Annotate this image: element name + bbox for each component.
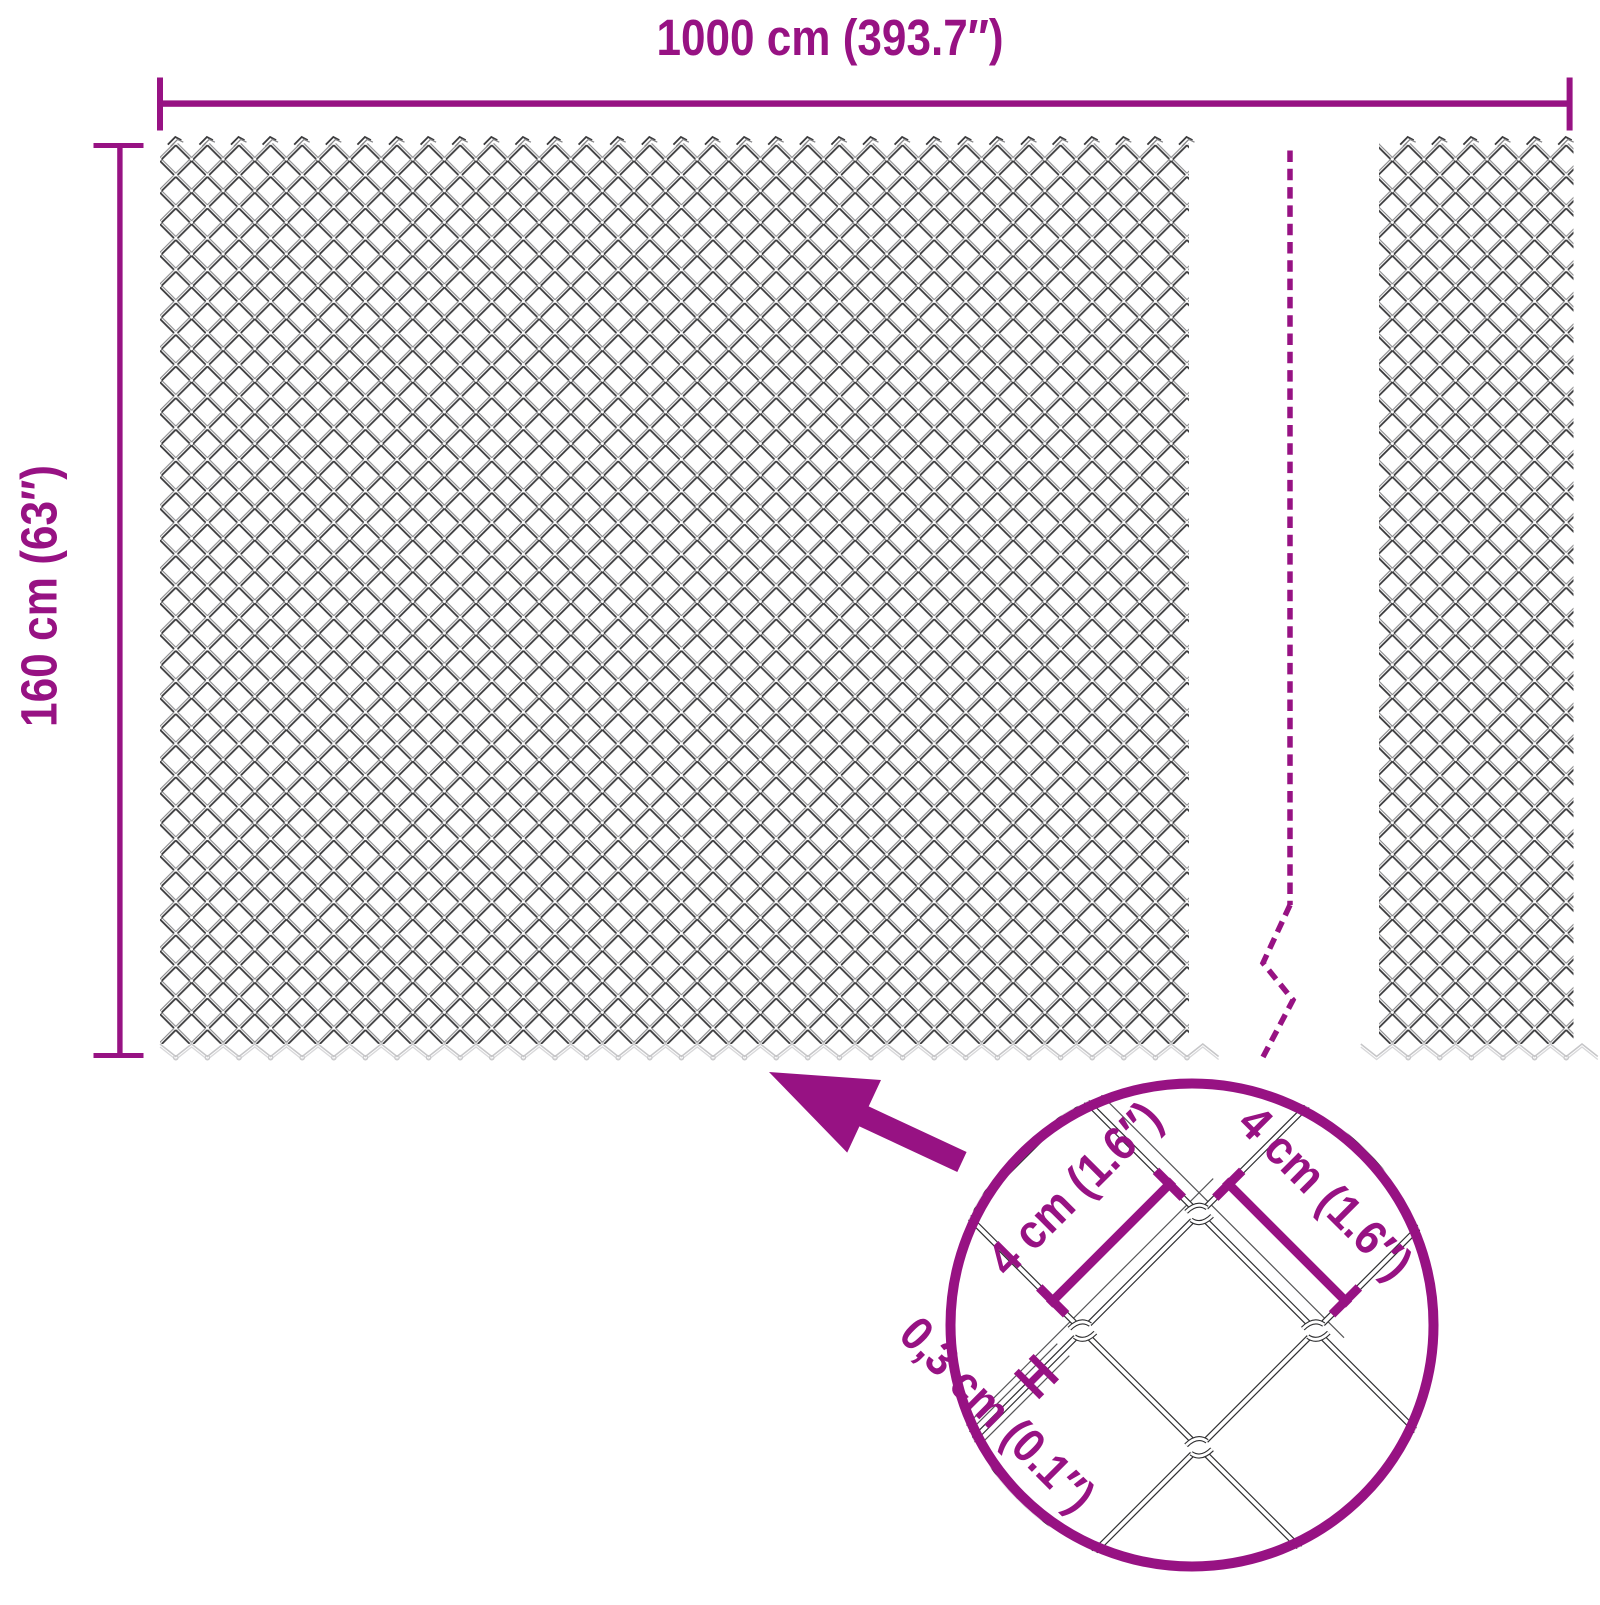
svg-text:1000 cm (393.7″): 1000 cm (393.7″) — [657, 9, 1004, 66]
svg-text:160 cm (63″): 160 cm (63″) — [11, 465, 68, 727]
